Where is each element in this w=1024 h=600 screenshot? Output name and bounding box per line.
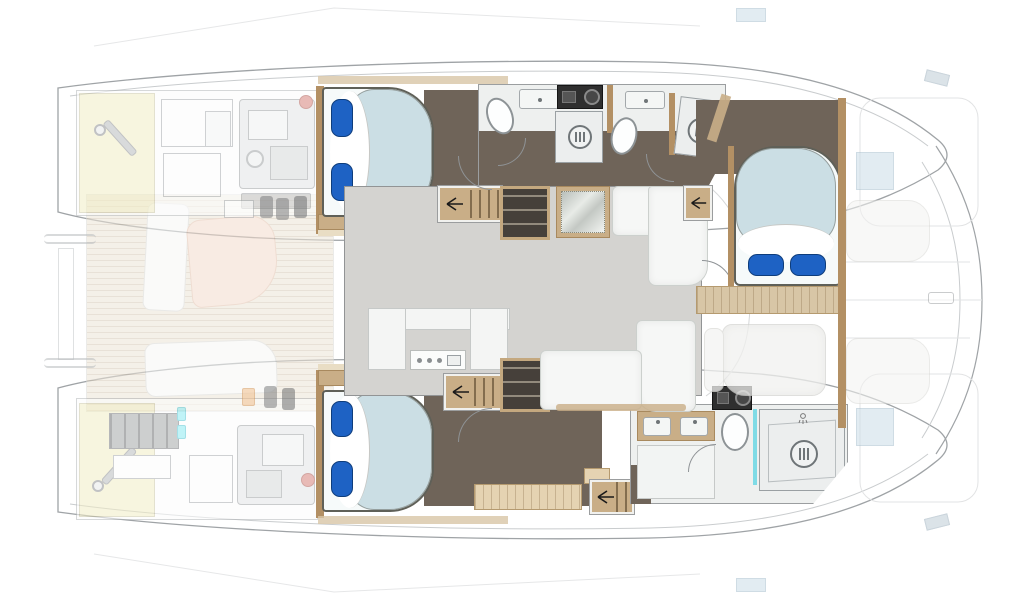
forward-lounge-seat	[700, 318, 836, 402]
shower-head-icon	[796, 412, 810, 426]
engine-block-port	[239, 99, 315, 189]
equipment-box-2	[163, 153, 221, 197]
salon-sofa-aft-h	[540, 350, 642, 410]
engine-detail-stbd	[262, 434, 304, 466]
wood-ledge	[607, 85, 613, 133]
sink-port-2	[625, 91, 665, 109]
head-starboard	[630, 404, 848, 504]
steering-pivot-stbd	[92, 480, 104, 492]
genset-box	[205, 111, 231, 147]
vent-cyan-2	[177, 425, 186, 439]
deck-vent-upper	[924, 69, 950, 86]
washer-panel	[562, 91, 576, 103]
bow-sunpad-port	[846, 200, 930, 262]
shower-drain	[790, 440, 818, 468]
deck-vent-lower	[924, 513, 950, 530]
bow-deck	[844, 0, 1024, 600]
cooktop-knob	[437, 358, 442, 363]
vanity-sink-1	[643, 417, 671, 436]
yacht-floorplan-page: { "diagram": { "type": "yacht-floorplan"…	[0, 0, 1024, 600]
coachroof-hatch-bottom	[736, 578, 766, 592]
wardrobe-starboard	[474, 484, 582, 510]
table-top-gloss	[561, 191, 605, 233]
forward-cabin-walkway	[696, 286, 840, 314]
hatch-box	[224, 200, 254, 218]
sofa-base-trim	[556, 404, 686, 411]
stairs-starboard-aft	[590, 480, 634, 514]
sink-port-1	[519, 89, 559, 109]
pillow	[790, 254, 826, 276]
shelf-unit-top	[500, 186, 550, 240]
stair-treads	[474, 378, 500, 406]
hull-shelf-trim-stbd	[318, 516, 508, 524]
bow-sunpad-starboard	[846, 338, 930, 404]
battery-bank	[109, 413, 179, 449]
aft-deck-gear-starboard	[224, 384, 316, 410]
pillow	[331, 99, 353, 137]
shower-port-1	[555, 111, 603, 163]
pillow	[331, 401, 353, 437]
steering-pivot	[94, 124, 106, 136]
faucet	[693, 420, 697, 424]
transom-steps	[58, 248, 74, 360]
fender-3	[294, 196, 307, 218]
deck-hatch-port	[856, 152, 894, 190]
guest-bed-starboard	[322, 390, 434, 512]
stair-treads	[470, 190, 500, 218]
engine-detail-stbd-2	[246, 470, 282, 498]
engine-pulley	[246, 150, 264, 168]
aft-cockpit	[86, 194, 334, 412]
cooktop-knob	[417, 358, 422, 363]
engine-room-starboard	[76, 398, 318, 520]
forward-bed	[734, 146, 842, 286]
stairs-arrow-icon	[443, 196, 465, 212]
vanity-sink-2	[680, 417, 708, 436]
stairs-arrow-icon	[594, 489, 616, 505]
shower-glass-teal	[753, 409, 757, 485]
hull-shelf-trim-port	[318, 76, 508, 84]
steering-actuator	[102, 119, 137, 157]
vent-cyan-1	[177, 407, 186, 421]
pillow	[331, 461, 353, 497]
dining-table	[556, 186, 610, 238]
engine-detail-2	[270, 146, 308, 180]
steering-gear-panel	[79, 93, 155, 213]
galley-cooktop	[410, 350, 466, 370]
fender-1	[260, 196, 273, 218]
stairs-to-starboard-hull	[444, 374, 502, 410]
deck-hatch-starboard	[856, 408, 894, 446]
lounge-cushion-2	[704, 328, 724, 392]
battery-tray	[113, 455, 171, 479]
faucet	[538, 98, 542, 102]
bow-cleat-fitting	[928, 292, 954, 304]
stairs-to-port-hull	[438, 186, 502, 222]
cockpit-bench-forward	[142, 202, 190, 312]
davit-arm-bottom	[44, 358, 96, 368]
stairs-to-forward-cabin	[684, 186, 712, 220]
davit-arm-top	[44, 234, 96, 244]
coachroof-hatch-top	[736, 8, 766, 22]
fender-2	[276, 198, 289, 220]
faucet	[656, 420, 660, 424]
cooktop-knob	[427, 358, 432, 363]
stairs-arrow-icon	[449, 384, 471, 400]
galley-arm-left	[368, 308, 406, 370]
engine-detail	[248, 110, 288, 140]
equipment-box-stbd	[189, 455, 233, 503]
winch-red-port	[299, 95, 313, 109]
galley-sink	[447, 355, 461, 366]
forward-cabin-side-wood-left	[728, 146, 734, 286]
toilet-starboard	[721, 413, 749, 451]
pillow	[748, 254, 784, 276]
salon-sofa-aft-v	[636, 320, 696, 412]
faucet	[644, 99, 648, 103]
vanity-double	[637, 411, 715, 441]
shower-drain	[568, 125, 592, 149]
winch-red-starboard	[301, 473, 315, 487]
shower-starboard	[759, 409, 845, 491]
fender-4	[264, 386, 277, 408]
lounge-cushion	[722, 324, 826, 396]
jerry-can-orange	[242, 388, 255, 406]
engine-block-starboard	[237, 425, 315, 505]
aft-deck-gear-port	[224, 196, 316, 222]
fender-5	[282, 388, 295, 410]
washing-machine-port	[557, 85, 603, 109]
stairs-arrow-icon	[688, 195, 708, 211]
washer-drum	[584, 89, 600, 105]
